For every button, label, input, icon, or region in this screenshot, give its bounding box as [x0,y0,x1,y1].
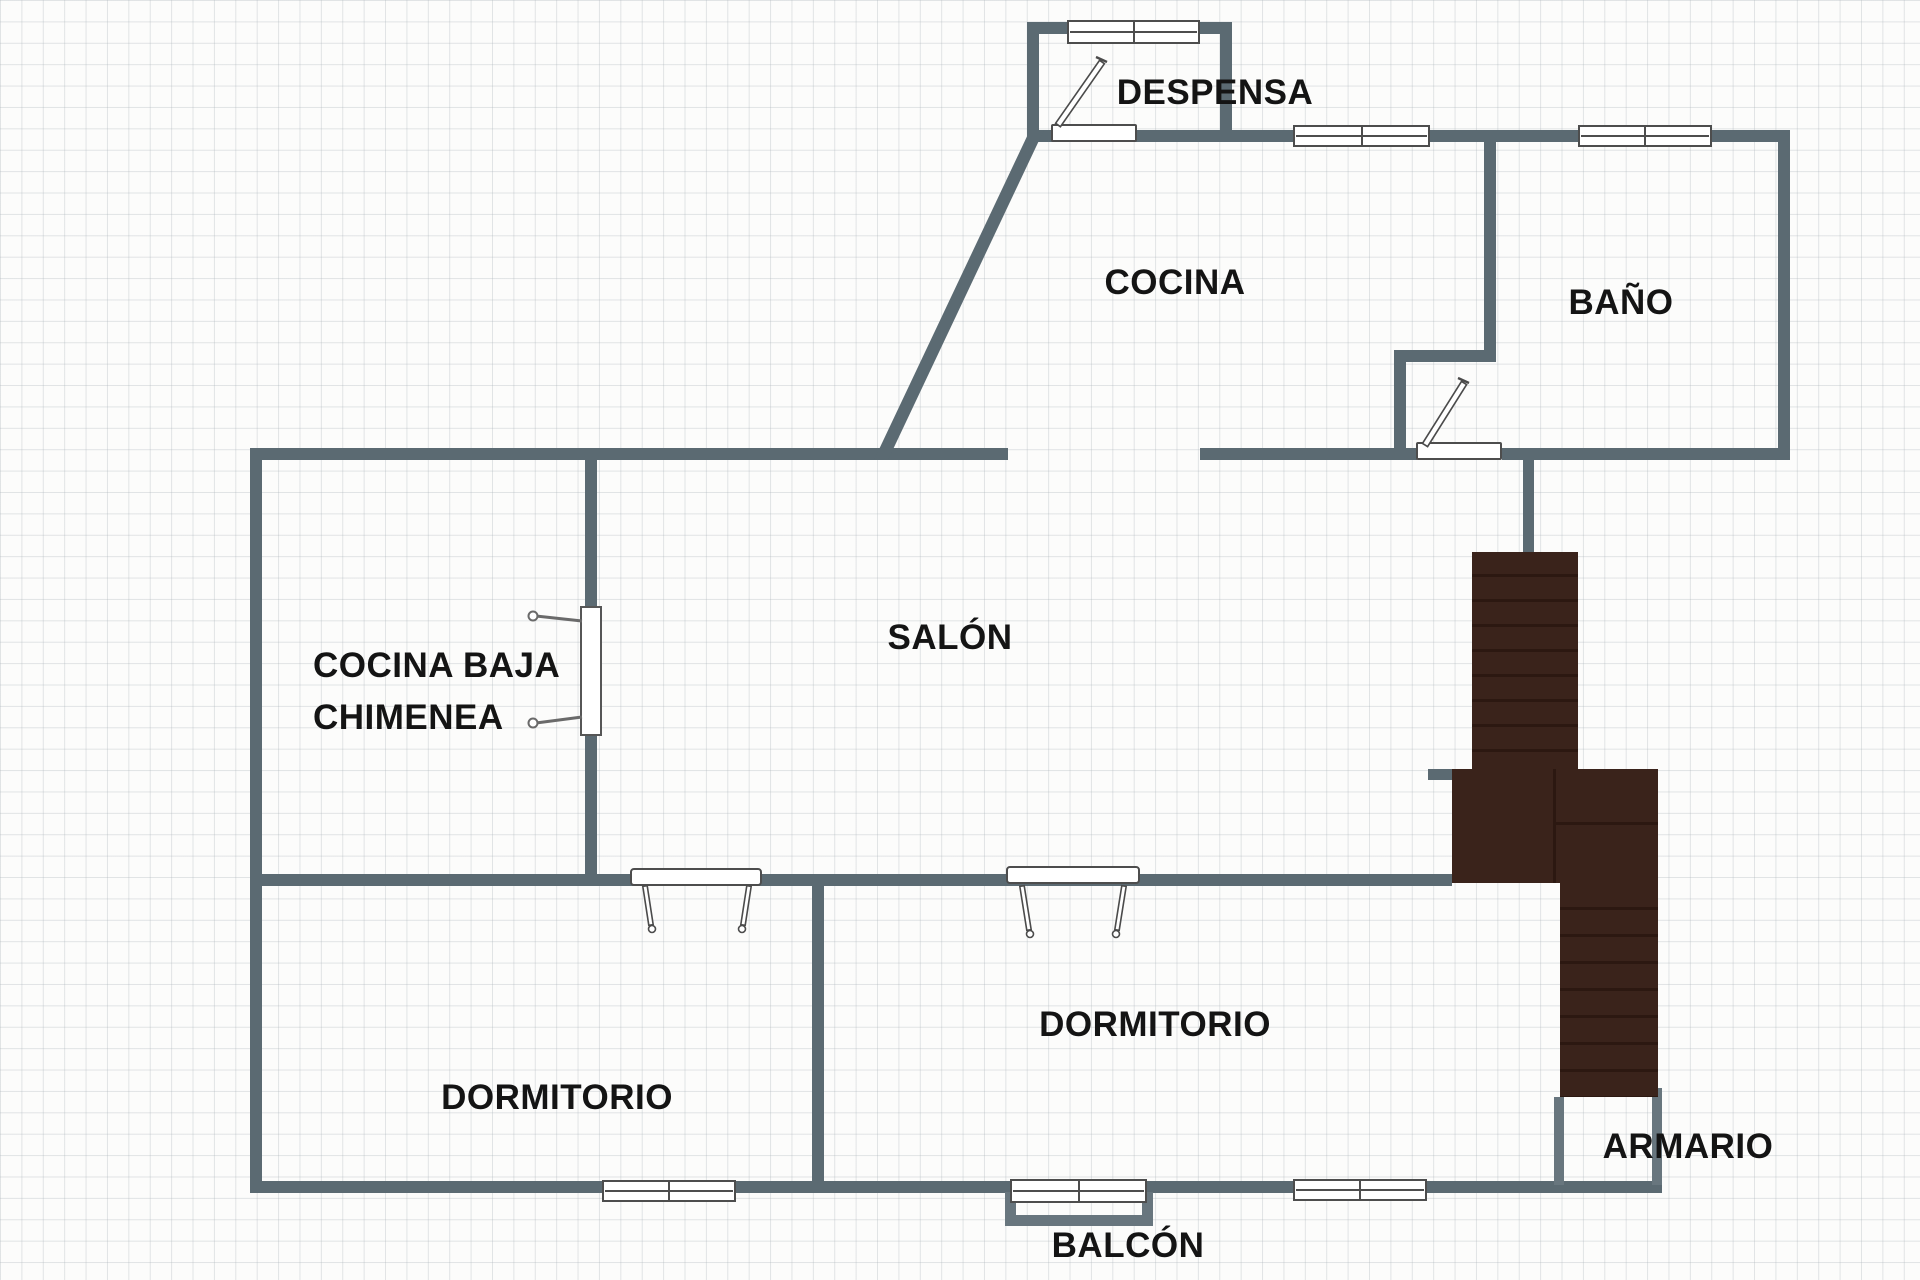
window-divider [1644,127,1646,145]
dorm2-door-leaf-left [1020,886,1031,931]
window-divider [1361,127,1363,145]
wall-right-outer [1778,130,1790,460]
wall-salon-top [250,448,1008,460]
hatch-handle-top [536,616,582,621]
room-label-salon: SALÓN [888,618,1013,658]
wall-cocinabaja-divider-top [585,448,597,608]
stairs-landing-line-h [1553,822,1658,825]
window-divider [668,1182,670,1200]
bano-door-handle [1458,378,1469,383]
stairs-landing-line-v [1553,769,1556,883]
door-despensa [1051,124,1137,142]
stairs-upper-flight [1472,552,1578,770]
dorm1-door-leaf-left [643,886,653,926]
wall-bano-jog-v [1394,350,1406,460]
wall-bano-bottom [1502,448,1790,460]
despensa-door-handle [1096,57,1107,62]
wall-corridor-bottom [1200,448,1417,460]
window-dormitorio1-bottom [602,1180,736,1202]
hatch-handle-bottom [536,717,582,723]
wall-stair-stub [1523,458,1534,554]
stairs-lower-flight [1560,883,1658,1097]
hatch-cocina-baja [580,606,602,736]
wall-balcony-bottom [1005,1215,1153,1226]
wall-bottom [250,1181,1662,1193]
room-label-cocina: COCINA [1104,263,1245,303]
wall-cocinabaja-divider-bottom [585,733,597,886]
window-dormitorio2-bottom [1293,1179,1427,1201]
hatch-handle-bottom-knob [529,719,538,728]
room-label-dormitorio1: DORMITORIO [441,1078,673,1118]
door-bano [1416,442,1502,460]
wall-bano-jog-h [1394,350,1496,362]
wall-bano-left [1484,130,1496,362]
room-label-dormitorio2: DORMITORIO [1039,1005,1271,1045]
floor-plan: DESPENSA COCINA BAÑO COCINA BAJA CHIMENE… [0,0,1920,1280]
window-cocina-top [1293,125,1430,147]
despensa-door-leaf [1056,60,1105,126]
window-despensa [1067,20,1200,44]
window-bano-top [1578,125,1712,147]
room-label-armario: ARMARIO [1603,1127,1774,1167]
room-label-bano: BAÑO [1568,283,1673,323]
room-label-despensa: DESPENSA [1117,73,1314,113]
room-label-cocina-baja-line2: CHIMENEA [313,698,504,738]
room-label-cocina-baja-line1: COCINA BAJA [313,646,560,686]
window-divider [1133,22,1135,42]
wall-despensa-left [1027,22,1039,142]
door-dormitorio2 [1006,866,1140,884]
bano-door-leaf [1423,381,1467,446]
dorm1-door-leaf-right [741,886,751,926]
door-dormitorio1 [630,868,762,886]
dorm2-door-leaf-right [1115,886,1126,931]
wall-diagonal [874,130,1044,460]
dorm2-door-hook-left [1027,931,1034,938]
wall-left-outer [250,448,262,1193]
room-label-balcon: BALCÓN [1052,1226,1205,1266]
wall-armario-left [1554,1097,1564,1185]
dorm1-door-hook-left [649,926,656,933]
wall-dorm-divider [812,874,824,1193]
hatch-handle-top-knob [529,612,538,621]
window-divider [1078,1181,1080,1201]
dorm2-door-hook-right [1113,931,1120,938]
balcony-french-door [1010,1179,1147,1203]
window-divider [1359,1181,1361,1199]
wall-salon-dorm [250,874,1452,886]
dorm1-door-hook-right [739,926,746,933]
